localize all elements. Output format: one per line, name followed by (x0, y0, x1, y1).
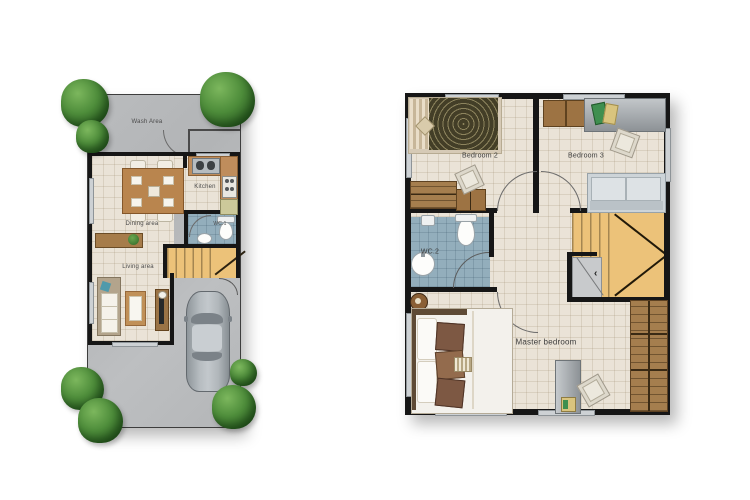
master-bed-frame-top (412, 309, 467, 315)
burner-4 (230, 187, 234, 191)
chest-divider (470, 190, 471, 210)
bed2-duvet (429, 98, 498, 150)
wc2-toilet (457, 218, 475, 246)
burner-3 (225, 187, 229, 191)
stairs-direction-arrow: ‹ (594, 268, 597, 279)
sink-basin-1 (196, 161, 204, 170)
kitchen-cart (220, 199, 238, 215)
floorplan-canvas: Wash Area (0, 0, 750, 500)
window-living-bottom (112, 342, 158, 347)
bedside-lamp (415, 298, 421, 304)
wc2-sink (411, 252, 435, 276)
coffee-table-top (129, 296, 142, 321)
bedroom3-sofa-cushion-2 (626, 177, 661, 201)
kitchen-stove (222, 176, 237, 198)
tree-top-right (200, 72, 255, 127)
tv-screen (159, 298, 164, 324)
sofa-cushion-2 (101, 306, 118, 320)
master-wardrobe-shelf-2 (631, 369, 667, 371)
bedroom3-dresser-1 (543, 100, 566, 127)
car (186, 291, 230, 392)
car-rear-window (192, 352, 222, 361)
wall-wc2-right (489, 213, 494, 257)
wc1-label: WC.1 (213, 221, 226, 227)
wall-living-right (170, 273, 174, 345)
plate-2 (163, 176, 174, 185)
master-desk-book-green (563, 400, 568, 409)
bedroom3-sofa (587, 173, 666, 213)
master-desk-book (561, 397, 576, 412)
master-wardrobe (630, 300, 668, 412)
sink-basin-2 (207, 161, 215, 170)
wardrobe-rail (411, 194, 456, 195)
wall-stairs-left (163, 244, 167, 278)
plate-1 (131, 176, 142, 185)
plate-3 (131, 198, 142, 207)
sofa-cushion-1 (101, 293, 118, 307)
dining-area-label: Dining area (126, 221, 159, 227)
tv-cabinet (155, 289, 169, 331)
bedroom2-chest (456, 189, 486, 211)
wall-landing-top (567, 252, 597, 256)
living-sofa (97, 277, 121, 336)
window-left-wall-2 (89, 282, 94, 324)
ground-floor-plan: Wash Area (0, 0, 375, 500)
master-duvet-fold (472, 311, 474, 409)
wc2-toilet-tank (455, 214, 477, 222)
plate-4 (163, 198, 174, 207)
bedroom2-wardrobe (410, 181, 457, 209)
master-pillow-white-2 (417, 361, 437, 403)
upper-stairs-winder (615, 213, 665, 297)
master-bed-headboard (412, 309, 416, 410)
bedroom3-sofa-back (590, 201, 663, 210)
wall-wc1-left (184, 210, 188, 248)
wall-kitchen-stub (183, 152, 187, 168)
wc2-shelf (421, 215, 435, 226)
burner-1 (225, 179, 229, 183)
bedroom3-sofa-cushion-1 (591, 177, 626, 201)
car-mirror-left (184, 316, 188, 322)
master-pillow-brown-3 (435, 378, 466, 409)
car-windshield (191, 313, 223, 324)
bedroom3-label: Bedroom 3 (568, 153, 604, 160)
tree-bottom-right-2 (212, 385, 256, 429)
wall-wc1-bottom (163, 244, 240, 248)
car-mirror-right (228, 316, 232, 322)
wc1-sink (197, 233, 212, 244)
stairs-landing (572, 257, 602, 299)
wall-landing-left (567, 253, 572, 302)
dining-table (122, 168, 184, 214)
tree-top-left-2 (76, 120, 109, 153)
kitchen-sink (192, 158, 220, 174)
burner-2 (230, 179, 234, 183)
master-wardrobe-rail (648, 301, 650, 411)
tv-dish (158, 291, 167, 299)
wc2-label: WC.2 (421, 249, 439, 256)
wash-area-label: Wash Area (132, 119, 163, 125)
living-area-label: Living area (122, 264, 154, 270)
car-roof (192, 325, 222, 351)
tree-top-left-1 (61, 79, 109, 127)
tree-bottom-right-1 (230, 359, 257, 386)
master-cushion-striped (454, 357, 472, 372)
bedroom3-desk (584, 98, 666, 132)
tree-bottom-left-2 (78, 398, 123, 443)
sofa-pillow-teal (100, 281, 111, 292)
wash-fence (188, 129, 240, 131)
coffee-table (125, 291, 146, 326)
master-bedroom-label: Master bedroom (515, 338, 576, 347)
window-left-wall-1 (89, 178, 94, 224)
sideboard-plant (128, 234, 139, 245)
bed2 (408, 97, 502, 154)
desk-book-tan (602, 103, 618, 125)
centerpiece (148, 186, 160, 197)
sofa-cushion-3 (101, 319, 118, 333)
master-wardrobe-shelf-1 (631, 333, 667, 335)
bedroom2-label: Bedroom 2 (462, 153, 498, 160)
master-pillow-brown-1 (435, 322, 465, 352)
master-bed (411, 308, 513, 414)
kitchen-label: Kitchen (194, 184, 215, 190)
upper-floor-plan: ‹ Bedro (375, 0, 750, 500)
